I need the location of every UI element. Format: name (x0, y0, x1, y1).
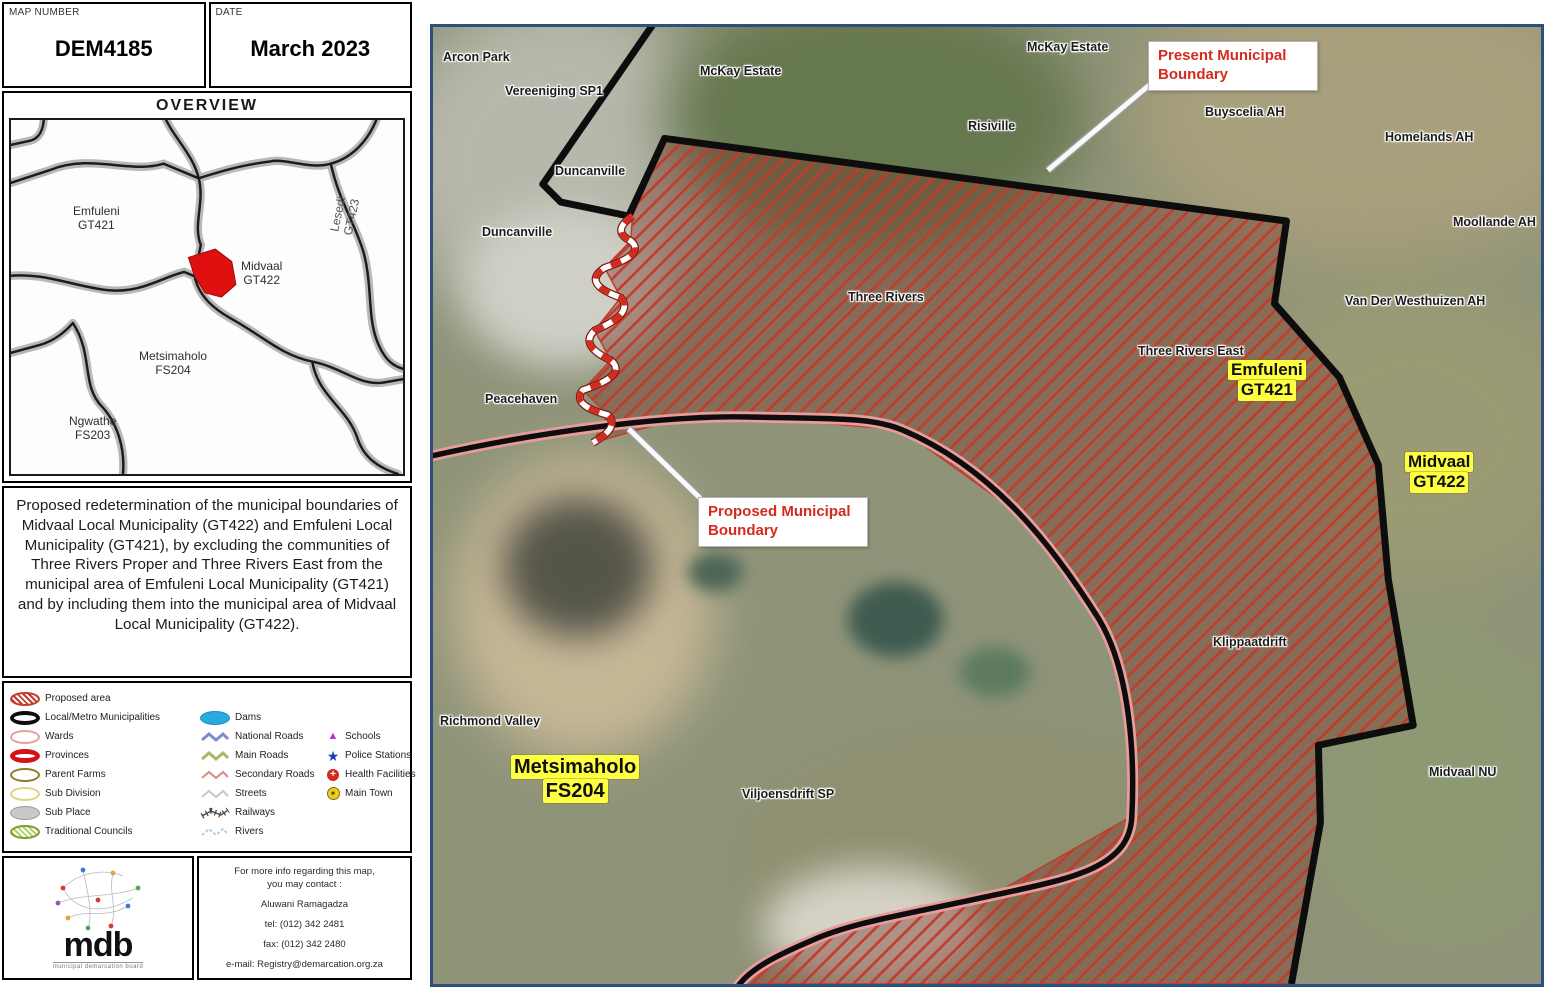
traditional-councils-icon (10, 825, 40, 839)
overview-label-midvaal: MidvaalGT422 (241, 260, 282, 288)
health-facilities-icon: + (326, 768, 340, 782)
map-number-value: DEM4185 (4, 36, 204, 62)
mdb-network-graphic (43, 858, 153, 936)
overview-label-ngwathe: NgwatheFS203 (69, 415, 116, 443)
streets-icon (200, 787, 230, 801)
mdb-logo-tagline: municipal demarcation board (53, 962, 144, 970)
date-label: DATE (216, 7, 243, 18)
municipality-label-midvaal: MidvaalGT422 (1405, 452, 1473, 493)
contact-tel: tel: (012) 342 2481 (199, 919, 410, 930)
date-value: March 2023 (211, 36, 411, 62)
contact-fax: fax: (012) 342 2480 (199, 939, 410, 950)
map-number-label: MAP NUMBER (9, 7, 80, 18)
satellite-map: Arcon Park Vereeniging SP1 McKay Estate … (430, 24, 1544, 987)
present-boundary-callout: Present Municipal Boundary (1148, 41, 1318, 91)
description-text: Proposed redetermination of the municipa… (4, 488, 410, 642)
place-label: McKay Estate (1027, 40, 1108, 54)
place-label: Vereeniging SP1 (505, 84, 603, 98)
municipality-label-emfuleni: EmfuleniGT421 (1228, 360, 1306, 401)
parent-farms-outline-icon (10, 768, 40, 782)
railways-icon (200, 806, 230, 820)
place-label: Duncanville (555, 164, 625, 178)
overview-box: OVERVIEW (2, 91, 412, 483)
place-label: Richmond Valley (440, 714, 540, 728)
legend-point-column: ▲Schools ★Police Stations +Health Facili… (326, 689, 408, 803)
contact-line2: you may contact : (199, 879, 410, 890)
place-label: Moollande AH (1453, 215, 1536, 229)
footer-row: mdb municipal demarcation board For more… (2, 856, 412, 980)
rivers-icon (200, 825, 230, 839)
main-town-icon: ✶ (326, 787, 340, 801)
place-label: Three Rivers East (1138, 344, 1244, 358)
contact-email: e-mail: Registry@demarcation.org.za (199, 959, 410, 970)
sub-division-outline-icon (10, 787, 40, 801)
place-label: Van Der Westhuizen AH (1345, 294, 1485, 308)
info-panel: MAP NUMBER DEM4185 DATE March 2023 OVERV… (2, 2, 412, 980)
sub-place-icon (10, 806, 40, 820)
legend: Proposed area Local/Metro Municipalities… (2, 681, 412, 853)
mdb-logo: mdb municipal demarcation board (2, 856, 194, 980)
overview-label-metsimaholo: MetsimaholoFS204 (139, 350, 207, 378)
place-label: Duncanville (482, 225, 552, 239)
legend-line-column: Dams National Roads Main Roads Secondary… (200, 689, 328, 841)
proposed-boundary-callout: Proposed Municipal Boundary (698, 497, 868, 547)
contact-line1: For more info regarding this map, (199, 866, 410, 877)
provinces-outline-icon (10, 749, 40, 763)
map-number-box: MAP NUMBER DEM4185 (2, 2, 206, 88)
proposed-area-icon (10, 692, 40, 706)
mdb-logo-text: mdb (64, 930, 133, 961)
place-label: Three Rivers (848, 290, 924, 304)
place-label: Buyscelia AH (1205, 105, 1284, 119)
municipality-outline-icon (10, 711, 40, 725)
police-stations-icon: ★ (326, 749, 340, 763)
place-label: Klippaatdrift (1213, 635, 1287, 649)
place-label: Homelands AH (1385, 130, 1473, 144)
dams-icon (200, 711, 230, 725)
secondary-roads-icon (200, 768, 230, 782)
overview-inset-map: EmfuleniGT421 MidvaalGT422 LesediGT423 M… (9, 118, 405, 476)
main-roads-icon (200, 749, 230, 763)
contact-name: Aluwani Ramagadza (199, 899, 410, 910)
overview-label-emfuleni: EmfuleniGT421 (73, 205, 120, 233)
schools-icon: ▲ (326, 730, 340, 744)
place-label: Midvaal NU (1429, 765, 1496, 779)
place-label: Arcon Park (443, 50, 510, 64)
contact-info: For more info regarding this map, you ma… (197, 856, 412, 980)
description-box: Proposed redetermination of the municipa… (2, 486, 412, 678)
municipality-label-metsimaholo: MetsimaholoFS204 (511, 755, 639, 803)
place-label: Viljoensdrift SP (742, 787, 834, 801)
date-box: DATE March 2023 (209, 2, 413, 88)
legend-area-column: Proposed area Local/Metro Municipalities… (10, 689, 196, 841)
wards-outline-icon (10, 730, 40, 744)
place-label: Peacehaven (485, 392, 557, 406)
national-roads-icon (200, 730, 230, 744)
place-label: Risiville (968, 119, 1015, 133)
header-row: MAP NUMBER DEM4185 DATE March 2023 (2, 2, 412, 88)
overview-title: OVERVIEW (4, 93, 410, 118)
place-label: McKay Estate (700, 64, 781, 78)
